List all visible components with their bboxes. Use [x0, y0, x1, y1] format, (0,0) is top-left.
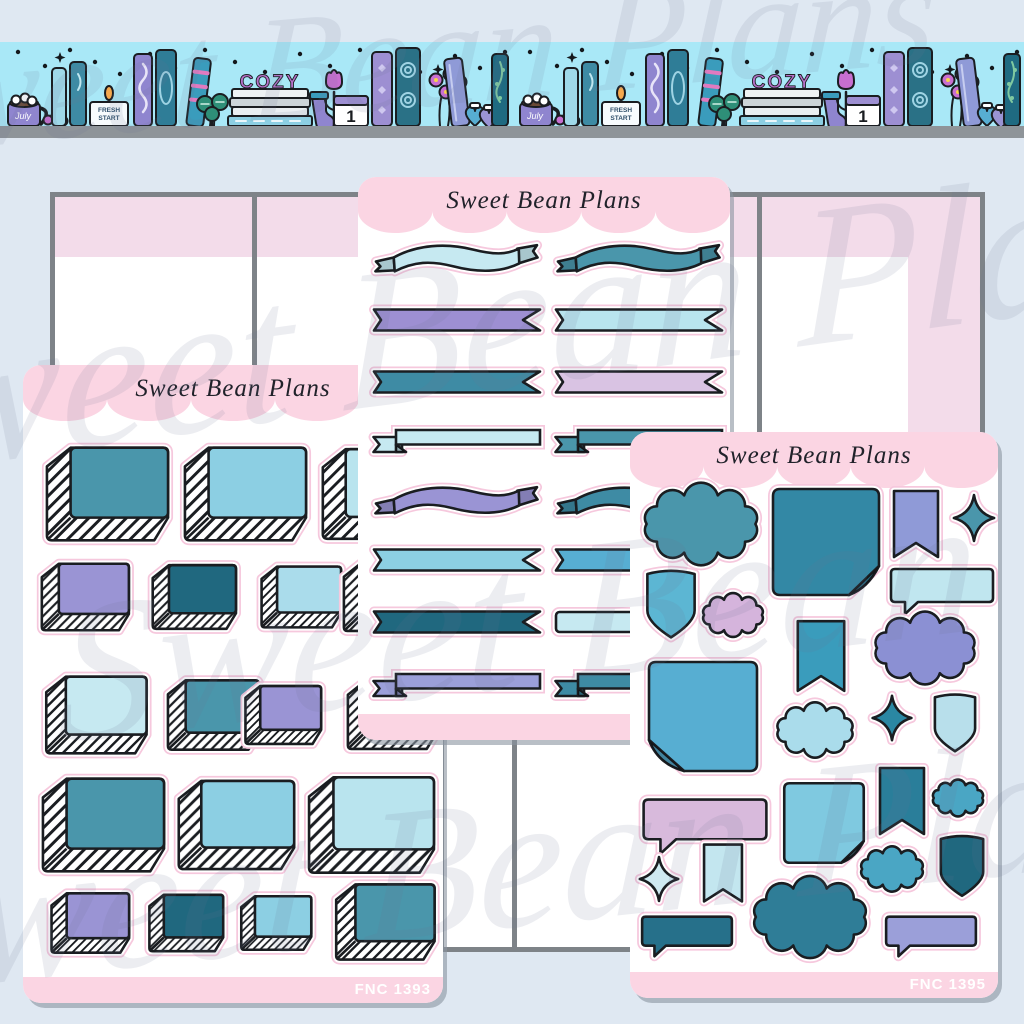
- sheet-title: Sweet Bean Plans: [630, 442, 998, 470]
- sticker-pennant-banner: [374, 310, 540, 331]
- sticker-ribbon-banner: [374, 430, 541, 452]
- sku-label: FNC 1395: [910, 976, 986, 993]
- bookshelf-banner: [0, 42, 1024, 138]
- sticker-cloud: [645, 483, 757, 566]
- sticker-pennant-banner: [374, 612, 540, 633]
- sticker-shield: [647, 571, 694, 638]
- sticker-box: [185, 448, 306, 541]
- sticker-box: [262, 567, 341, 628]
- sticker-box: [179, 781, 294, 869]
- sticker-sparkle: [640, 857, 678, 901]
- sticker-bookmark-flag: [704, 845, 742, 902]
- sticker-box: [46, 677, 146, 754]
- sticker-box: [241, 896, 311, 950]
- sticker-box: [52, 893, 130, 952]
- sticker-bookmark-flag: [798, 621, 844, 691]
- sheet-title: Sweet Bean Plans: [358, 187, 730, 215]
- sticker-pennant-banner: [556, 310, 722, 331]
- sticker-box: [309, 777, 434, 872]
- sticker-cloud: [703, 593, 763, 637]
- sticker-wavy-banner: [375, 487, 537, 513]
- sticker-sticky-note: [773, 489, 879, 595]
- sticker-speech-bubble: [891, 569, 993, 614]
- product-mockup: July FRESH START: [0, 0, 1024, 1024]
- sticker-box: [42, 564, 129, 631]
- sheet-footer: FNC 1395: [630, 972, 998, 998]
- sticker-box: [47, 448, 168, 541]
- sticker-bookmark-flag: [894, 491, 938, 557]
- sticker-bookmark-flag: [880, 768, 924, 834]
- sticker-shield: [941, 836, 983, 896]
- backdrop-sheet-band: [55, 197, 253, 257]
- sticker-sparkle: [873, 696, 912, 740]
- sticker-box: [149, 895, 223, 951]
- sticker-sheet-shapes: Sweet Bean Plans FNC 1395: [630, 432, 998, 998]
- sticker-box: [336, 884, 434, 959]
- sticker-sticky-note: [649, 662, 757, 771]
- sticker-cloud: [876, 612, 975, 685]
- sticker-box: [153, 565, 236, 629]
- sticker-wavy-banner: [375, 245, 537, 271]
- sticker-box: [43, 779, 164, 872]
- sticker-cloud: [861, 846, 923, 891]
- sticker-speech-bubble: [642, 917, 732, 957]
- sticker-wavy-banner: [557, 245, 719, 271]
- sticker-sparkle: [954, 495, 994, 541]
- sticker-speech-bubble: [886, 917, 976, 957]
- sticker-cloud: [933, 780, 983, 817]
- sticker-cloud: [754, 876, 866, 958]
- sku-label: FNC 1393: [355, 981, 431, 998]
- sticker-pennant-banner: [556, 372, 722, 393]
- sticker-shield: [935, 695, 975, 752]
- sticker-ribbon-banner: [374, 674, 541, 696]
- sticker-pennant-banner: [374, 550, 540, 571]
- sticker-pennant-banner: [374, 372, 540, 393]
- sticker-cloud: [777, 702, 852, 757]
- shelf: [0, 126, 1024, 138]
- sticker-box: [245, 686, 321, 744]
- sticker-sticky-note: [784, 783, 864, 863]
- sheet-footer: FNC 1393: [23, 977, 443, 1003]
